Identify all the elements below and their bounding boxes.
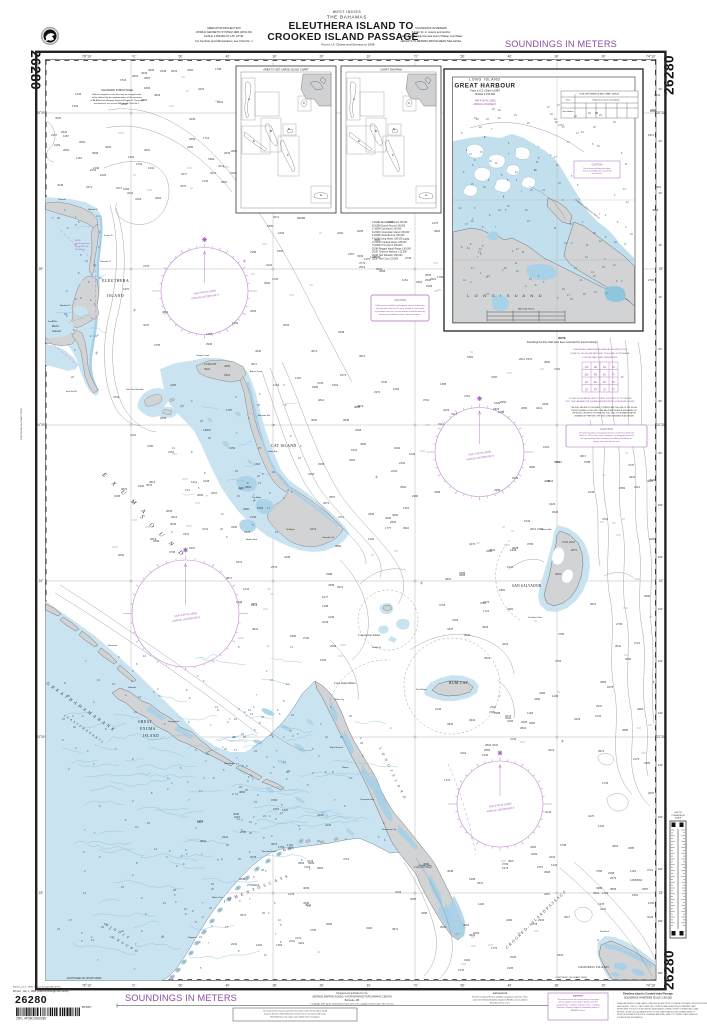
svg-text:red to the World Geodetic Syst: red to the World Geodetic System (WGS) c… <box>473 998 528 1001</box>
svg-text:1362: 1362 <box>368 537 375 541</box>
svg-text:2774: 2774 <box>244 530 251 534</box>
svg-text:Directions. Planning Guides fo: Directions. Planning Guides for informat… <box>557 1006 599 1009</box>
svg-text:1896: 1896 <box>290 634 297 638</box>
svg-text:2258: 2258 <box>608 871 615 875</box>
svg-text:2398: 2398 <box>494 711 501 715</box>
svg-text:CAT ISLAND: CAT ISLAND <box>271 444 297 448</box>
svg-text:160´: 160´ <box>658 867 664 871</box>
svg-text:Height above datum of sounding: Height above datum of soundings <box>593 99 620 102</box>
svg-text:2726: 2726 <box>648 278 655 282</box>
svg-text:3901: 3901 <box>204 367 211 371</box>
svg-text:4384: 4384 <box>507 607 514 611</box>
svg-text:1391: 1391 <box>403 506 410 510</box>
svg-text:1713: 1713 <box>203 136 210 140</box>
svg-text:2936: 2936 <box>206 342 213 346</box>
svg-text:LONG ISLAND: LONG ISLAND <box>469 78 501 82</box>
svg-text:3470: 3470 <box>123 287 130 291</box>
svg-text:75°: 75° <box>413 984 419 988</box>
svg-text:aid to navigation, particularl: aid to navigation, particularly on float… <box>558 1001 598 1004</box>
svg-text:2582: 2582 <box>619 486 626 490</box>
svg-text:1422: 1422 <box>507 565 514 569</box>
svg-text:26282: 26282 <box>297 216 306 220</box>
svg-text:Hatchet Pt: Hatchet Pt <box>88 208 98 211</box>
svg-text:20´: 20´ <box>602 55 607 59</box>
svg-text:26280: 26280 <box>662 55 677 95</box>
svg-text:4770: 4770 <box>628 463 635 467</box>
svg-text:ZONE 18, 100 000 METER GRID TI: ZONE 18, 100 000 METER GRID TICKS AND SY… <box>570 352 630 355</box>
svg-text:South nor a NLO scale, and for: South nor a NLO scale, and for navigatio… <box>579 434 634 437</box>
svg-text:3884: 3884 <box>335 544 342 548</box>
svg-text:24°: 24° <box>659 579 665 583</box>
svg-text:120´: 120´ <box>658 607 664 611</box>
svg-text:RU: RU <box>594 381 598 384</box>
svg-text:4967: 4967 <box>508 859 515 863</box>
svg-text:NAVSAT's Charts.: NAVSAT's Charts. <box>571 1009 586 1012</box>
svg-text:ST: ST <box>603 389 607 392</box>
svg-text:20´: 20´ <box>658 139 662 143</box>
svg-text:QA: QA <box>585 366 589 369</box>
svg-text:4349: 4349 <box>542 402 549 406</box>
svg-text:2441: 2441 <box>222 835 229 839</box>
svg-text:2513: 2513 <box>359 265 366 269</box>
svg-text:bearings and distances from co: bearings and distances from common featu… <box>379 313 421 316</box>
svg-text:NAUTICAL MILES: NAUTICAL MILES <box>518 308 535 311</box>
svg-text:4371: 4371 <box>273 215 280 219</box>
svg-text:1510: 1510 <box>543 445 550 449</box>
svg-text:4423: 4423 <box>266 263 273 267</box>
svg-text:4572: 4572 <box>323 501 330 505</box>
svg-text:1897: 1897 <box>205 428 212 432</box>
svg-text:3195: 3195 <box>114 494 121 498</box>
svg-text:2429: 2429 <box>317 813 324 817</box>
svg-text:3819: 3819 <box>357 404 364 408</box>
svg-text:3214: 3214 <box>218 164 225 168</box>
svg-text:4600: 4600 <box>544 360 551 364</box>
svg-text:23°: 23° <box>39 891 45 895</box>
svg-text:Simms: Simms <box>342 767 348 769</box>
svg-text:1776: 1776 <box>491 946 498 950</box>
svg-text:60´: 60´ <box>658 347 662 351</box>
svg-text:4386: 4386 <box>421 911 428 915</box>
svg-text:2872: 2872 <box>571 548 578 552</box>
svg-text:4625: 4625 <box>311 418 318 422</box>
svg-text:A: A <box>248 97 250 101</box>
svg-text:1761: 1761 <box>287 843 294 847</box>
svg-text:1543: 1543 <box>524 519 531 523</box>
svg-text:1878: 1878 <box>607 685 614 689</box>
svg-text:3864: 3864 <box>141 98 148 102</box>
svg-text:ELEUTHERA: ELEUTHERA <box>102 278 129 283</box>
svg-text:(914 millimeters), this copy i: (914 millimeters), this copy is not cert… <box>270 1016 320 1019</box>
svg-text:2835: 2835 <box>166 509 173 513</box>
svg-text:4559: 4559 <box>392 513 399 517</box>
svg-text:Prepared and published by the: Prepared and published by the <box>336 992 368 995</box>
svg-text:GREAT: GREAT <box>138 720 152 724</box>
svg-text:4564: 4564 <box>636 878 643 882</box>
svg-text:1187: 1187 <box>63 134 69 138</box>
svg-text:Burnt Ground: Burnt Ground <box>330 746 343 749</box>
svg-text:4761: 4761 <box>464 394 471 398</box>
svg-text:H 26280 This chart 1:300,00: H 26280 This chart 1:300,000 <box>372 244 403 247</box>
svg-text:2912: 2912 <box>530 527 537 531</box>
svg-text:4985: 4985 <box>459 573 466 577</box>
svg-text:3984: 3984 <box>326 922 333 926</box>
svg-text:1973: 1973 <box>502 866 509 870</box>
svg-text:2296: 2296 <box>498 410 505 414</box>
svg-text:over the dock.: over the dock. <box>592 172 603 175</box>
svg-text:and beacons, see annual NM lis: and beacons, see annual NM list and Char… <box>94 102 140 105</box>
svg-text:SCALE: SCALE <box>675 817 682 820</box>
svg-text:26257 Clarence Harbour 1:12,: 26257 Clarence Harbour 1:12,500 <box>372 251 407 254</box>
svg-text:4966: 4966 <box>649 537 656 541</box>
svg-text:A: A <box>353 97 355 101</box>
svg-text:2495: 2495 <box>308 472 315 476</box>
svg-text:4841: 4841 <box>252 627 259 631</box>
svg-text:METER SQUARE OF THE GRID ZONE: METER SQUARE OF THE GRID ZONE AND IDENTI… <box>571 409 637 412</box>
svg-text:2196: 2196 <box>93 166 100 170</box>
svg-text:3505: 3505 <box>374 238 381 242</box>
svg-text:4943: 4943 <box>652 208 659 212</box>
svg-text:2757: 2757 <box>537 865 544 869</box>
svg-text:James Pt: James Pt <box>104 234 113 237</box>
svg-text:2861: 2861 <box>245 485 252 489</box>
svg-text:Arthurs Town: Arthurs Town <box>250 370 263 373</box>
svg-text:1954: 1954 <box>332 383 339 387</box>
svg-text:26280: 26280 <box>662 950 677 990</box>
svg-text:3355: 3355 <box>494 488 501 492</box>
svg-text:(Under 31: in meters and tenth: (Under 31: in meters and tenths) <box>412 30 451 34</box>
svg-text:3729: 3729 <box>113 395 120 399</box>
svg-text:4773: 4773 <box>359 261 366 265</box>
svg-text:4993: 4993 <box>224 364 231 368</box>
svg-text:4988: 4988 <box>596 886 603 890</box>
svg-text:3782: 3782 <box>558 632 565 636</box>
svg-text:3619: 3619 <box>150 537 157 541</box>
svg-text:4276: 4276 <box>469 542 476 546</box>
svg-text:RT: RT <box>594 389 598 392</box>
svg-text:3569: 3569 <box>440 925 447 929</box>
svg-text:2685: 2685 <box>628 846 635 850</box>
svg-text:3776: 3776 <box>143 264 150 268</box>
svg-text:3447: 3447 <box>600 907 607 911</box>
svg-text:Bird Rock: Bird Rock <box>600 930 610 933</box>
svg-text:2540: 2540 <box>510 955 517 959</box>
svg-text:To ensure that this chart was: To ensure that this chart was printed to… <box>263 1010 327 1013</box>
svg-text:2176: 2176 <box>483 600 490 604</box>
svg-text:2679: 2679 <box>610 876 617 880</box>
svg-text:180´: 180´ <box>658 919 664 923</box>
svg-text:HEIGHTS IN METERS ABOVE MEAN S: HEIGHTS IN METERS ABOVE MEAN SEA LEVEL <box>401 39 462 43</box>
svg-text:aly of 2°W to 4: aly of 2°W to 4 <box>75 245 89 248</box>
svg-text:Ragged I: Ragged I <box>188 937 197 939</box>
svg-text:TU: TU <box>612 381 615 384</box>
svg-text:2692: 2692 <box>264 281 271 285</box>
svg-text:4135: 4135 <box>210 362 217 366</box>
svg-text:2554: 2554 <box>349 458 356 462</box>
svg-text:3488: 3488 <box>326 572 333 576</box>
svg-text:2801: 2801 <box>231 149 238 153</box>
svg-text:26280: 26280 <box>15 994 47 1006</box>
svg-text:23°30´: 23°30´ <box>656 735 665 739</box>
svg-text:2337: 2337 <box>596 704 603 708</box>
svg-text:4213: 4213 <box>548 748 555 752</box>
svg-text:3667: 3667 <box>329 495 336 499</box>
svg-text:GREAT HARBOUR: GREAT HARBOUR <box>454 83 515 90</box>
svg-text:2985: 2985 <box>312 385 319 389</box>
svg-text:Thompson Bay: Thompson Bay <box>360 799 375 801</box>
svg-text:4180: 4180 <box>170 383 177 387</box>
svg-text:2826: 2826 <box>485 743 492 747</box>
svg-text:2828: 2828 <box>512 546 519 550</box>
svg-text:1798: 1798 <box>215 67 222 71</box>
svg-text:80´: 80´ <box>658 451 662 455</box>
svg-text:the reporting of positions acc: the reporting of positions according to … <box>581 437 633 440</box>
svg-text:1693: 1693 <box>278 231 285 235</box>
svg-text:2716: 2716 <box>247 883 254 887</box>
svg-text:Old Bight: Old Bight <box>286 528 295 531</box>
svg-text:3873: 3873 <box>121 487 128 491</box>
svg-text:1466: 1466 <box>206 332 213 336</box>
svg-text:D 26281 Conception Island 1: D 26281 Conception Island 1:80,000 <box>372 231 410 234</box>
svg-text:3549: 3549 <box>464 633 471 637</box>
svg-text:4965: 4965 <box>644 761 651 765</box>
svg-text:3112: 3112 <box>438 422 444 426</box>
svg-text:2721: 2721 <box>634 641 641 645</box>
svg-text:4412: 4412 <box>536 406 543 410</box>
svg-text:NOTE: NOTE <box>75 240 81 242</box>
svg-text:4629: 4629 <box>105 145 112 149</box>
svg-text:1881: 1881 <box>467 355 474 359</box>
svg-text:C: C <box>408 101 410 105</box>
svg-text:4812: 4812 <box>318 398 325 402</box>
svg-text:2911: 2911 <box>648 133 654 137</box>
svg-text:Orange Creek: Orange Creek <box>196 354 210 357</box>
svg-text:1334: 1334 <box>148 166 155 170</box>
svg-text:2599: 2599 <box>330 644 337 648</box>
svg-text:SV: SV <box>603 374 607 377</box>
svg-text:Wedge Pt: Wedge Pt <box>372 646 382 649</box>
svg-text:40´: 40´ <box>658 295 662 299</box>
svg-text:4495: 4495 <box>534 697 541 701</box>
svg-text:Soundings for this chart have: Soundings for this chart have been corre… <box>527 341 598 344</box>
svg-text:3645: 3645 <box>552 510 559 514</box>
svg-text:SOUNDINGS IN METERS SCALE 1:3: SOUNDINGS IN METERS SCALE 1:300,000 <box>624 997 673 1000</box>
svg-text:3972: 3972 <box>598 749 605 753</box>
svg-text:00´: 00´ <box>658 87 662 91</box>
svg-text:3283: 3283 <box>521 406 528 410</box>
svg-text:1103: 1103 <box>295 376 301 380</box>
svg-text:4304: 4304 <box>486 549 493 553</box>
svg-text:2372: 2372 <box>374 390 381 394</box>
svg-text:3741: 3741 <box>595 714 602 718</box>
svg-text:2838: 2838 <box>343 418 350 422</box>
svg-text:1777: 1777 <box>385 526 392 530</box>
svg-text:1420: 1420 <box>478 902 485 906</box>
svg-text:1278: 1278 <box>531 922 538 926</box>
svg-text:4101: 4101 <box>130 433 137 437</box>
svg-text:3816: 3816 <box>520 726 527 730</box>
svg-text:3730: 3730 <box>381 380 388 384</box>
svg-text:of IALA Maritime Buoyage Syste: of IALA Maritime Buoyage System A Region… <box>90 99 143 102</box>
svg-text:QU: QU <box>585 381 589 384</box>
svg-text:G: G <box>425 193 427 197</box>
svg-text:1732: 1732 <box>602 781 609 785</box>
svg-text:3384: 3384 <box>208 157 215 161</box>
svg-text:NOTE: NOTE <box>558 336 565 340</box>
svg-text:1462: 1462 <box>232 321 239 325</box>
svg-text:1432: 1432 <box>598 824 605 828</box>
svg-text:L O N G I S L A N D: L O N G I S L A N D <box>467 293 544 298</box>
svg-text:10´: 10´ <box>367 984 372 988</box>
svg-text:3947: 3947 <box>477 881 484 885</box>
svg-text:2740: 2740 <box>405 256 412 260</box>
svg-text:E: E <box>358 139 360 143</box>
svg-text:23°30´: 23°30´ <box>36 735 45 739</box>
svg-text:Deadmans Cay: Deadmans Cay <box>382 829 397 831</box>
svg-text:Palmetto Pt: Palmetto Pt <box>100 260 111 263</box>
svg-text:CHANGES IN BUOYAGE: CHANGES IN BUOYAGE <box>101 88 133 92</box>
svg-text:180´: 180´ <box>658 971 664 975</box>
svg-text:4950: 4950 <box>243 507 250 511</box>
svg-text:2911: 2911 <box>519 357 525 361</box>
svg-text:3309: 3309 <box>357 254 364 258</box>
svg-text:3162: 3162 <box>464 958 471 962</box>
svg-text:1358: 1358 <box>440 382 447 386</box>
svg-text:3710: 3710 <box>423 398 430 402</box>
svg-text:4160: 4160 <box>337 231 344 235</box>
svg-text:G: G <box>320 193 322 197</box>
svg-text:1148: 1148 <box>527 711 533 715</box>
svg-text:76°10´: 76°10´ <box>82 984 92 988</box>
svg-text:1524: 1524 <box>351 448 358 452</box>
svg-text:1692: 1692 <box>320 658 327 662</box>
svg-text:75°: 75° <box>413 55 419 59</box>
svg-text:25°: 25° <box>39 267 45 271</box>
svg-text:2164: 2164 <box>490 705 497 709</box>
svg-text:2611: 2611 <box>556 460 562 464</box>
svg-text:2170: 2170 <box>458 968 465 972</box>
svg-text:4638: 4638 <box>447 869 454 873</box>
svg-text:WORLD GEODETIC SYSTEM 1984 (WG: WORLD GEODETIC SYSTEM 1984 (WGS 84) <box>196 30 252 34</box>
svg-text:Smith Bay: Smith Bay <box>268 450 278 453</box>
svg-text:2833: 2833 <box>171 69 178 73</box>
svg-text:B: B <box>375 129 377 133</box>
svg-text:4986: 4986 <box>622 728 629 732</box>
svg-text:1890: 1890 <box>529 721 536 725</box>
svg-text:1968: 1968 <box>469 877 476 881</box>
svg-text:2894: 2894 <box>317 866 324 870</box>
svg-text:76°: 76° <box>131 984 137 988</box>
svg-text:4398: 4398 <box>434 490 441 494</box>
svg-text:1783: 1783 <box>437 275 444 279</box>
svg-text:RUM CAY: RUM CAY <box>449 681 468 685</box>
svg-text:1162: 1162 <box>76 156 82 160</box>
svg-text:20´: 20´ <box>658 191 662 195</box>
svg-text:50´: 50´ <box>179 984 184 988</box>
svg-text:CAUTION: CAUTION <box>592 164 603 167</box>
svg-text:2936: 2936 <box>318 462 325 466</box>
svg-text:RA: RA <box>594 366 598 369</box>
svg-text:Georgetown: Georgetown <box>168 720 180 723</box>
svg-text:24°30´: 24°30´ <box>36 423 45 427</box>
svg-text:3340: 3340 <box>138 484 145 488</box>
svg-text:3666: 3666 <box>155 196 162 200</box>
svg-text:E 26285 Great Exuma 1:80,00: E 26285 Great Exuma 1:80,000 <box>372 234 405 237</box>
svg-text:2146: 2146 <box>588 490 595 494</box>
svg-text:30´: 30´ <box>555 984 560 988</box>
svg-text:Local mag anom: Local mag anom <box>75 243 90 245</box>
svg-text:1494: 1494 <box>128 155 135 159</box>
svg-text:1636: 1636 <box>482 753 489 757</box>
svg-text:3754: 3754 <box>555 659 562 663</box>
svg-text:2229: 2229 <box>322 620 329 624</box>
svg-text:4270: 4270 <box>143 323 150 327</box>
svg-text:3786: 3786 <box>596 869 603 873</box>
svg-text:3391: 3391 <box>416 280 423 284</box>
svg-text:2457: 2457 <box>348 252 355 256</box>
svg-text:2233: 2233 <box>549 855 556 859</box>
svg-text:WARNING: WARNING <box>573 995 584 998</box>
svg-text:1704: 1704 <box>136 162 143 166</box>
svg-text:1977: 1977 <box>322 595 329 599</box>
svg-text:CROOKED ISLAND PASSAGE: CROOKED ISLAND PASSAGE <box>267 32 418 43</box>
svg-text:3691: 3691 <box>144 148 151 152</box>
svg-text:2472: 2472 <box>183 532 190 536</box>
svg-text:2204: 2204 <box>391 469 398 473</box>
svg-text:2159: 2159 <box>230 171 237 175</box>
svg-text:1281: 1281 <box>256 943 263 947</box>
svg-text:there is a possibility of the: there is a possibility of the water bein… <box>583 170 612 173</box>
svg-text:3187: 3187 <box>491 375 498 379</box>
svg-text:CAUTION: CAUTION <box>394 298 406 302</box>
svg-text:2102: 2102 <box>399 461 406 465</box>
svg-text:4734: 4734 <box>510 737 517 741</box>
svg-text:23°: 23° <box>659 891 665 895</box>
svg-text:2950: 2950 <box>500 400 507 404</box>
svg-text:160´: 160´ <box>658 815 664 819</box>
svg-text:3275: 3275 <box>250 855 257 859</box>
svg-text:3724: 3724 <box>562 540 569 544</box>
svg-text:1712: 1712 <box>483 609 490 613</box>
svg-text:3814: 3814 <box>359 354 366 358</box>
svg-text:20´: 20´ <box>602 984 607 988</box>
svg-text:THE GRID VALUES OF THE SHEET C: THE GRID VALUES OF THE SHEET CORNERS, AN… <box>571 406 637 409</box>
svg-text:B: B <box>270 129 272 133</box>
svg-text:1747: 1747 <box>444 778 451 782</box>
svg-text:2170: 2170 <box>432 221 439 225</box>
svg-text:DEPTH: DEPTH <box>675 812 682 814</box>
svg-text:3317: 3317 <box>116 186 123 190</box>
svg-text:4955: 4955 <box>360 442 367 446</box>
svg-text:1259: 1259 <box>648 901 655 905</box>
svg-text:Bennetts Hbr: Bennetts Hbr <box>258 414 270 417</box>
svg-text:Aids to navigation in this are: Aids to navigation in this area may be c… <box>93 93 142 96</box>
svg-text:1860: 1860 <box>267 224 274 228</box>
svg-text:20´: 20´ <box>320 55 325 59</box>
svg-text:2726: 2726 <box>537 527 544 531</box>
svg-text:100´: 100´ <box>658 503 664 507</box>
svg-text:2730: 2730 <box>250 515 257 519</box>
svg-text:3350: 3350 <box>187 68 194 72</box>
svg-text:2652: 2652 <box>63 148 70 152</box>
svg-text:3738: 3738 <box>169 550 176 554</box>
svg-text:4810: 4810 <box>445 577 452 581</box>
svg-text:F: F <box>287 153 289 157</box>
svg-text:1194: 1194 <box>273 383 279 387</box>
svg-text:Hawks Nest: Hawks Nest <box>246 538 258 541</box>
svg-text:TA: TA <box>612 366 615 369</box>
svg-text:3617: 3617 <box>251 362 258 366</box>
